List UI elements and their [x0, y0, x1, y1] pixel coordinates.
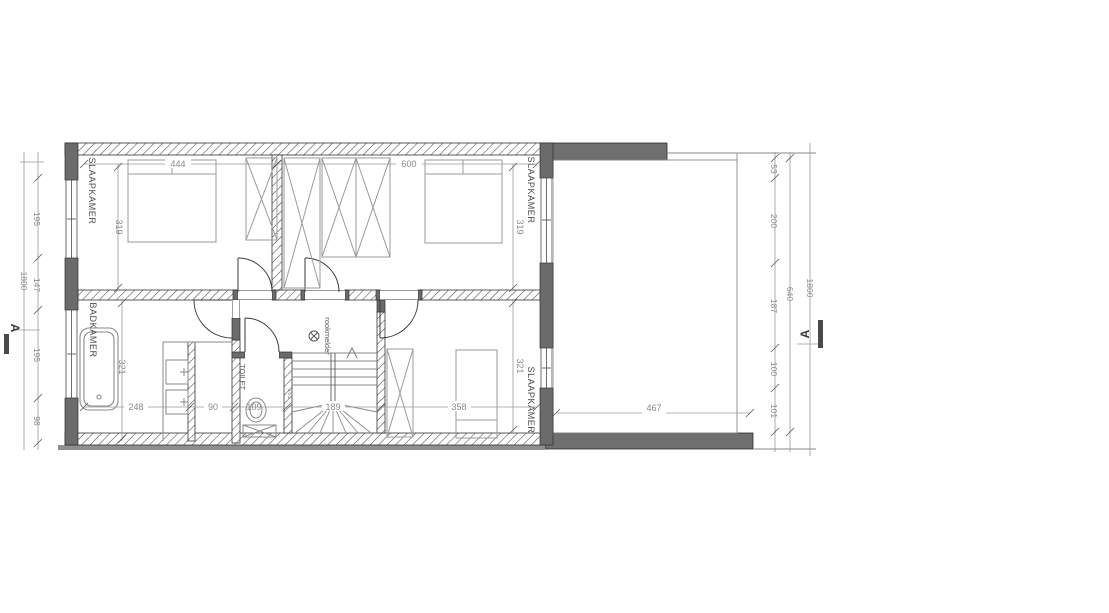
- dim-right-0: 53: [769, 164, 779, 174]
- dim-toilet-width: 109: [246, 402, 261, 412]
- dim-bedroom3-width: 358: [451, 402, 466, 412]
- label-toilet: TOILET: [238, 364, 247, 391]
- dim-left-total: 1800: [19, 272, 29, 291]
- door-toilet: [245, 318, 279, 352]
- dim-left-1: 147: [32, 278, 42, 292]
- dim-stairs-width: 189: [325, 402, 340, 412]
- dim-right-640: 640: [785, 287, 795, 301]
- bed-double-2: [425, 160, 502, 243]
- label-bedroom3: SLAAPKAMER: [526, 366, 536, 433]
- dim-roof-width: 467: [646, 403, 661, 413]
- section-bar-right: [818, 320, 823, 348]
- dim-bathroom-width: 248: [128, 402, 143, 412]
- stairs: [292, 348, 377, 433]
- dim-right-4: 101: [769, 404, 779, 418]
- right-dimension-texts: 53 200 187 100 101 640 1800: [769, 164, 815, 418]
- dim-bedroom3-depth: 321: [515, 358, 525, 373]
- interior-dimensions: [80, 158, 754, 443]
- dim-toilet-side: 161: [286, 389, 292, 400]
- wardrobe-2: [284, 158, 320, 288]
- dim-right-3: 100: [769, 362, 779, 376]
- left-dimension-chain: [14, 152, 44, 450]
- dim-bathroom-depth: 321: [117, 359, 127, 374]
- wardrobe-4: [387, 349, 413, 437]
- smoke-detector: rookmelder: [309, 317, 332, 355]
- door-bathroom: [194, 300, 232, 338]
- dim-bedroom1-width: 444: [170, 159, 185, 169]
- dim-bedroom2-width: 600: [401, 159, 416, 169]
- door-bedroom1: [238, 258, 272, 292]
- section-bar-left: [4, 334, 9, 354]
- bed-single: [456, 350, 497, 438]
- dim-left-3: 98: [32, 416, 42, 426]
- dim-right-1: 200: [769, 214, 779, 228]
- label-bedroom1: SLAAPKAMER: [87, 157, 97, 224]
- dim-bedroom1-depth: 319: [114, 219, 124, 234]
- door-bedroom3: [380, 300, 418, 338]
- dim-bedroom2-depth: 319: [515, 219, 525, 234]
- wardrobe-3: [322, 158, 390, 257]
- interior-dimension-texts: 444 600 319 319 321 321 248 90 109 189 3…: [114, 159, 662, 413]
- door-bedroom2: [305, 258, 339, 292]
- bathtub: [80, 328, 118, 410]
- section-label-left: A: [8, 324, 22, 333]
- label-bathroom: BADKAMER: [88, 302, 98, 357]
- floor-plan-canvas: rookmelder SLAAPKAMER SLAAPKAMER SLAAPKA…: [0, 0, 1109, 613]
- dim-left-0: 195: [32, 212, 42, 226]
- dim-left-2: 195: [32, 348, 42, 362]
- washbasin-counter: [163, 342, 232, 441]
- bed-double-1: [128, 160, 216, 242]
- section-label-right: A: [798, 329, 812, 338]
- dim-right-total: 1800: [805, 279, 815, 298]
- floor-plan-page: rookmelder SLAAPKAMER SLAAPKAMER SLAAPKA…: [0, 0, 1109, 613]
- smoke-detector-label: rookmelder: [323, 317, 332, 355]
- dim-niche-width: 90: [208, 402, 218, 412]
- left-dimension-texts: 195 147 195 98 1800: [19, 212, 42, 426]
- section-marker-left: A: [4, 324, 22, 354]
- dim-right-2: 187: [769, 299, 779, 313]
